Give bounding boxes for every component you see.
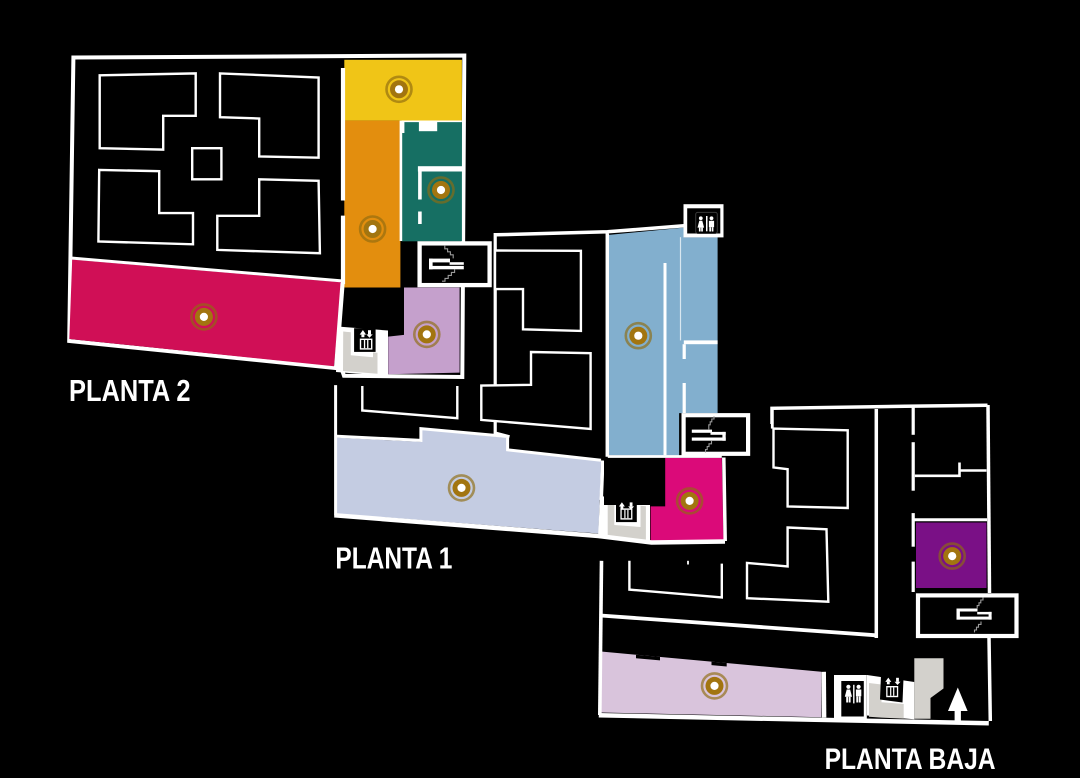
svg-text:PLANTA 2: PLANTA 2 xyxy=(69,373,191,408)
svg-text:PLANTA BAJA: PLANTA BAJA xyxy=(825,743,996,776)
svg-text:PLANTA 1: PLANTA 1 xyxy=(335,542,452,576)
